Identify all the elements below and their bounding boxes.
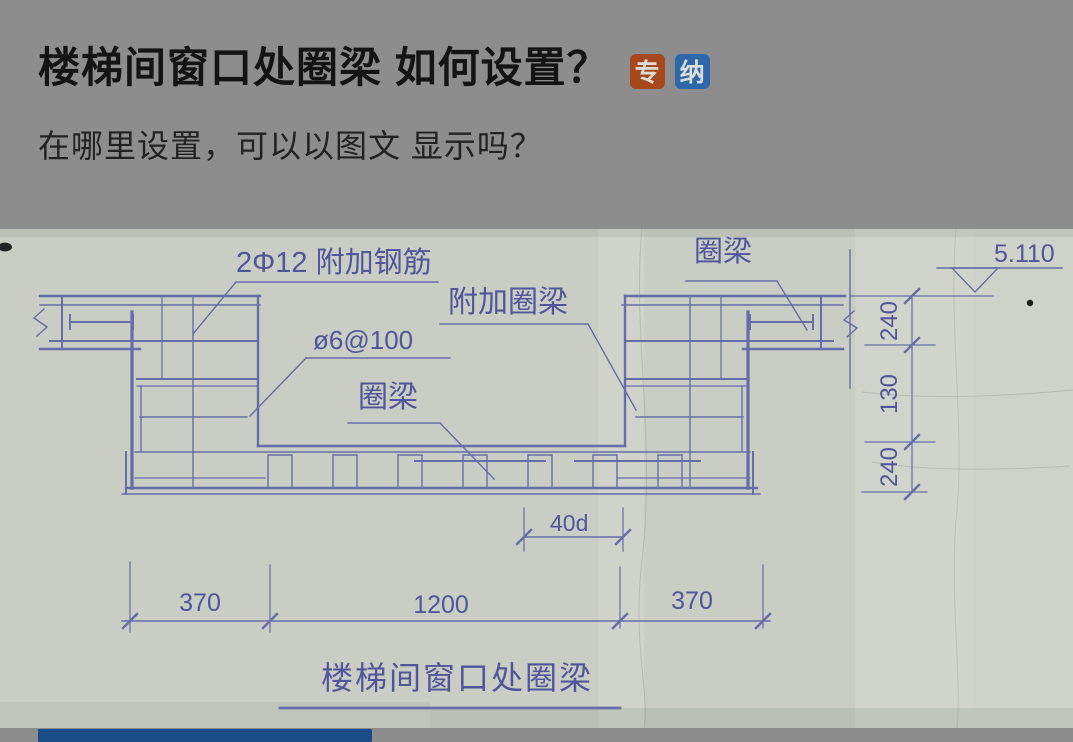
label-ring-beam-mid: 圈梁 xyxy=(358,381,418,414)
label-ring-beam-top: 圈梁 xyxy=(694,235,752,268)
badge-accepted: 纳 xyxy=(675,54,710,89)
label-additional-ring-beam: 附加圈梁 xyxy=(448,286,568,319)
label-elevation: 5.110 xyxy=(994,240,1055,268)
drawing-caption: 楼梯间窗口处圈梁 xyxy=(321,660,593,696)
dim-1200: 1200 xyxy=(413,591,469,619)
label-anchorage-length: 40d xyxy=(550,510,588,536)
label-additional-rebar: 2Φ12 附加钢筋 xyxy=(236,246,432,279)
label-stirrup-spec: ø6@100 xyxy=(313,325,413,355)
dim-240-top: 240 xyxy=(876,301,903,341)
badge-group: 专 纳 xyxy=(630,54,710,89)
paper-dot xyxy=(1027,300,1033,306)
footer-accent-bar xyxy=(38,729,372,742)
question-title-row: 楼梯间窗口处圈梁 如何设置？ 专 纳 xyxy=(38,44,1063,92)
question-title: 楼梯间窗口处圈梁 如何设置？ xyxy=(38,44,610,92)
badge-expert: 专 xyxy=(630,54,665,89)
dim-130: 130 xyxy=(876,374,903,414)
dim-370-right: 370 xyxy=(671,587,713,615)
page: { "header": { "title": "楼梯间窗口处圈梁 如何设置？",… xyxy=(0,0,1073,742)
question-subtitle: 在哪里设置，可以以图文 显示吗？ xyxy=(38,128,1063,165)
dim-240-bottom: 240 xyxy=(876,447,903,487)
dim-370-left: 370 xyxy=(179,589,221,617)
question-header: 楼梯间窗口处圈梁 如何设置？ 专 纳 在哪里设置，可以以图文 显示吗？ xyxy=(38,44,1063,165)
